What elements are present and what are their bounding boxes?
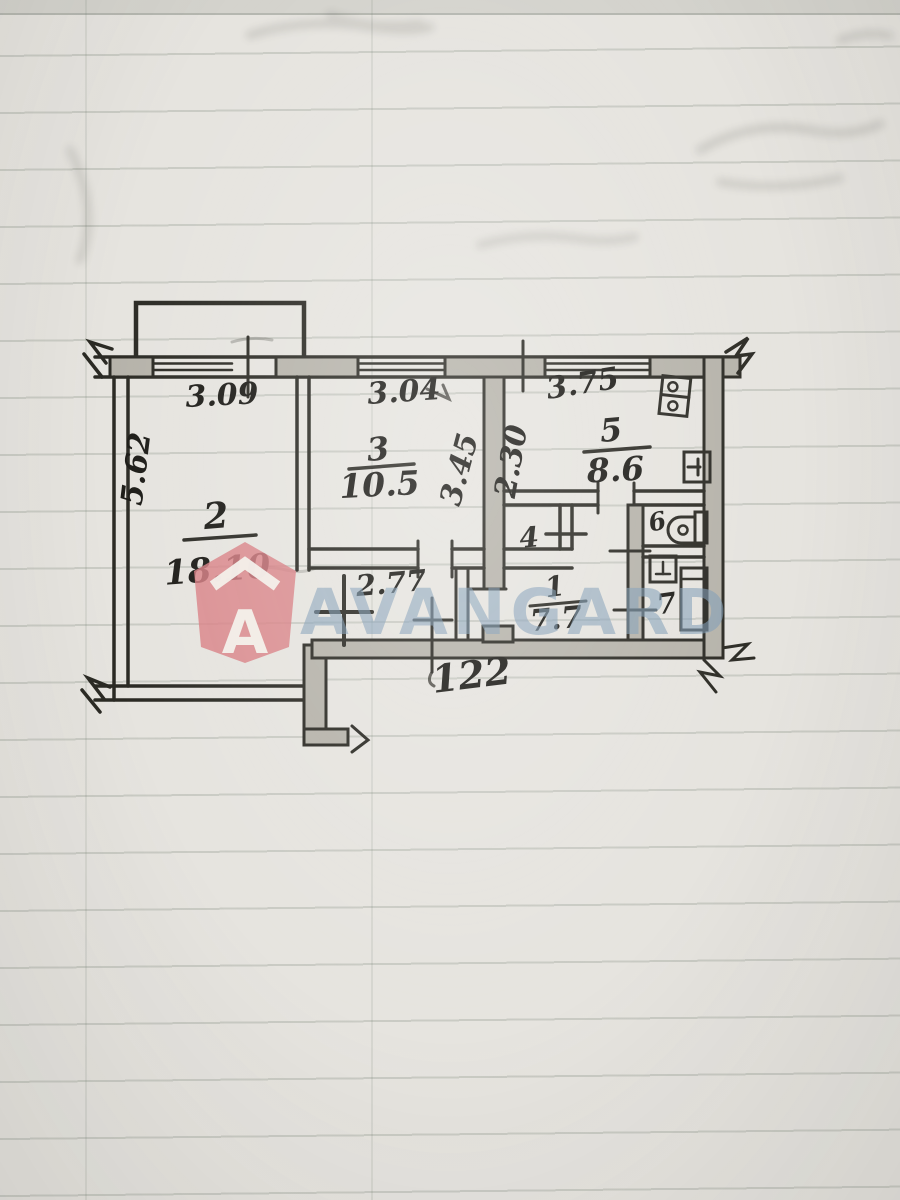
room3-number: 3 bbox=[365, 429, 390, 469]
wall-break-mark bbox=[84, 342, 112, 377]
paper-bleed-through bbox=[70, 15, 890, 260]
room4-walls bbox=[504, 505, 586, 568]
room5-area: 8.6 bbox=[585, 449, 645, 491]
window-3-09 bbox=[153, 364, 232, 371]
floor-plan-photo: 3.09 3.04 3.75 5.62 3.45 2.30 2 18.10 3 … bbox=[0, 0, 900, 1200]
toilet-icon bbox=[668, 512, 707, 543]
room2-bottom-wall bbox=[82, 678, 325, 712]
balcony-outline bbox=[136, 303, 304, 357]
dim-bottom-door-label: 122 bbox=[429, 647, 513, 701]
floor-plan: 3.09 3.04 3.75 5.62 3.45 2.30 2 18.10 3 … bbox=[82, 303, 754, 752]
dim-left-vertical-label: 5.62 bbox=[115, 430, 159, 507]
entrance-step-wall bbox=[304, 645, 368, 752]
stove-icon bbox=[659, 376, 691, 417]
dim-room3-right-label: 3.45 bbox=[433, 430, 486, 510]
floor-plan-drawing: 3.09 3.04 3.75 5.62 3.45 2.30 2 18.10 3 … bbox=[0, 0, 900, 1200]
room5-label: 5 8.6 bbox=[584, 410, 650, 490]
room3-label: 3 10.5 bbox=[338, 429, 420, 506]
room3-area: 10.5 bbox=[338, 463, 420, 506]
room2-room3-wall bbox=[297, 377, 309, 570]
dim-top-right-label: 3.75 bbox=[544, 361, 622, 407]
watermark-logo-letter: A bbox=[222, 598, 269, 668]
dim-top-middle-label: 3.04 bbox=[366, 372, 441, 412]
wall-break-mark bbox=[352, 726, 368, 752]
room2-number: 2 bbox=[201, 494, 231, 538]
room4-number: 4 bbox=[518, 520, 540, 555]
wall-break-mark bbox=[700, 660, 720, 692]
wall-break-mark bbox=[88, 678, 110, 699]
room5-number: 5 bbox=[598, 410, 623, 450]
window-3-04 bbox=[358, 364, 445, 371]
dim-top-left-label: 3.09 bbox=[185, 376, 260, 415]
room6-number: 6 bbox=[646, 506, 669, 538]
left-wall bbox=[114, 377, 128, 700]
watermark-brand-text: AVANGARD bbox=[300, 576, 732, 649]
